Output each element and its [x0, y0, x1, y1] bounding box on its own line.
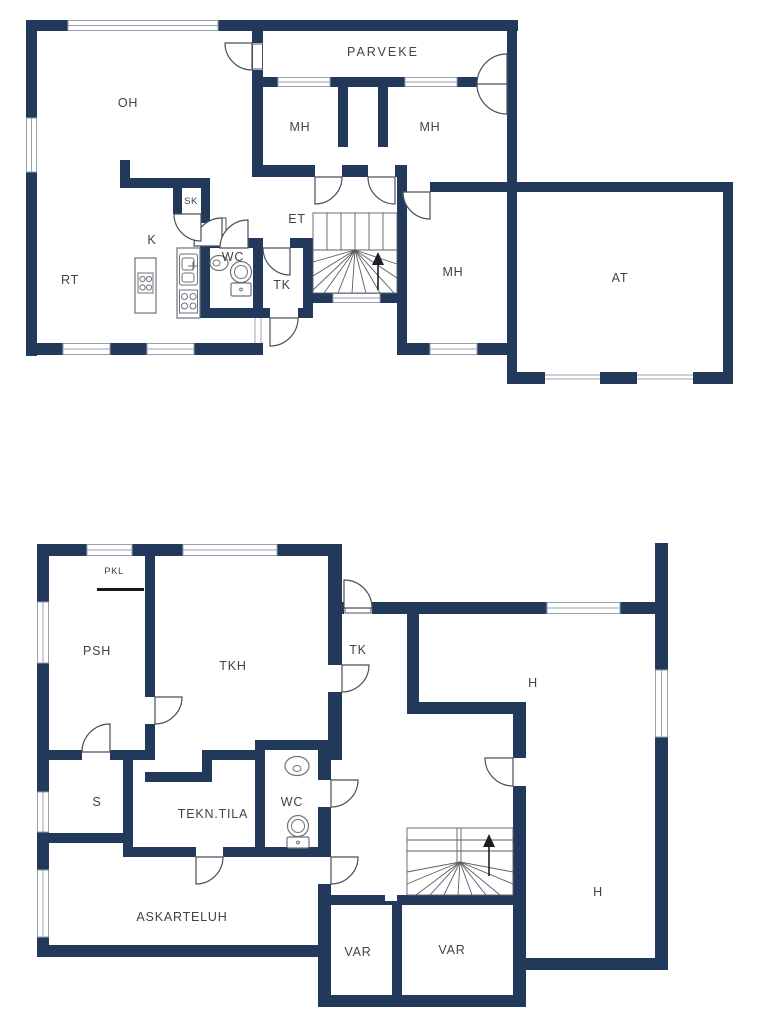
upper-floor-plan: OH PARVEKE MH MH MH ET SK K RT WC TK AT	[26, 20, 733, 384]
upper-walls	[26, 20, 733, 384]
room-label-tkh: TKH	[219, 659, 246, 673]
room-label-var-left: VAR	[344, 945, 371, 959]
room-label-mh-lower: MH	[442, 265, 463, 279]
room-label-tk: TK	[273, 278, 291, 292]
room-label-h-upper: H	[528, 676, 538, 690]
room-label-h-lower: H	[593, 885, 603, 899]
lower-floor-plan: PKL PSH TKH TK H H S TEKN.TILA WC ASKART…	[37, 543, 668, 1007]
room-label-mh-left: MH	[289, 120, 310, 134]
floor-plan-svg: OH PARVEKE MH MH MH ET SK K RT WC TK AT	[0, 0, 761, 1024]
toilet-icon	[231, 262, 252, 283]
room-label-rt: RT	[61, 273, 79, 287]
room-label-askarteluh: ASKARTELUH	[136, 910, 227, 924]
room-label-psh: PSH	[83, 644, 111, 658]
floor-plan-image: OH PARVEKE MH MH MH ET SK K RT WC TK AT	[0, 0, 761, 1024]
toilet-icon	[288, 816, 309, 837]
room-label-tekn-tila: TEKN.TILA	[178, 807, 248, 821]
room-label-var-right: VAR	[438, 943, 465, 957]
room-label-sk: SK	[184, 196, 198, 207]
room-label-wc: WC	[222, 250, 244, 264]
room-label-s: S	[92, 795, 101, 809]
room-label-wc: WC	[281, 795, 303, 809]
upper-stairs	[313, 213, 397, 293]
room-label-tk: TK	[349, 643, 367, 657]
room-label-k: K	[147, 233, 156, 247]
upper-kitchen-fixtures	[135, 248, 200, 318]
room-label-mh-right: MH	[419, 120, 440, 134]
room-label-et: ET	[288, 212, 306, 226]
room-label-oh: OH	[118, 96, 138, 110]
room-label-pkl: PKL	[104, 566, 123, 577]
stairs-up-arrow	[483, 834, 495, 847]
room-label-parveke: PARVEKE	[347, 45, 419, 59]
stairs-up-arrow	[372, 252, 384, 265]
room-label-at: AT	[612, 271, 629, 285]
pkl-partition-line	[97, 588, 144, 591]
upper-windows	[27, 21, 694, 380]
lower-partitions	[97, 588, 144, 591]
lower-stairs	[407, 828, 513, 895]
